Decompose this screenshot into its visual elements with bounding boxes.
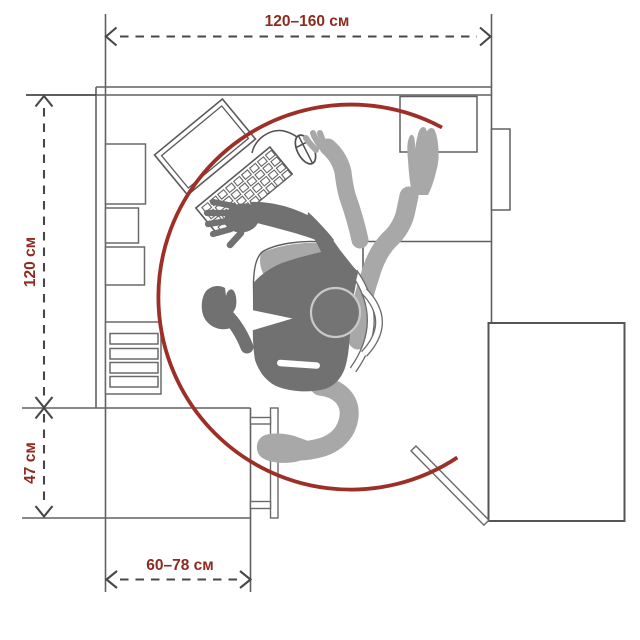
svg-text:60–78 см: 60–78 см — [146, 557, 214, 574]
svg-text:120–160 см: 120–160 см — [265, 13, 350, 30]
svg-text:47 см: 47 см — [22, 442, 39, 484]
svg-text:120 см: 120 см — [22, 237, 39, 287]
